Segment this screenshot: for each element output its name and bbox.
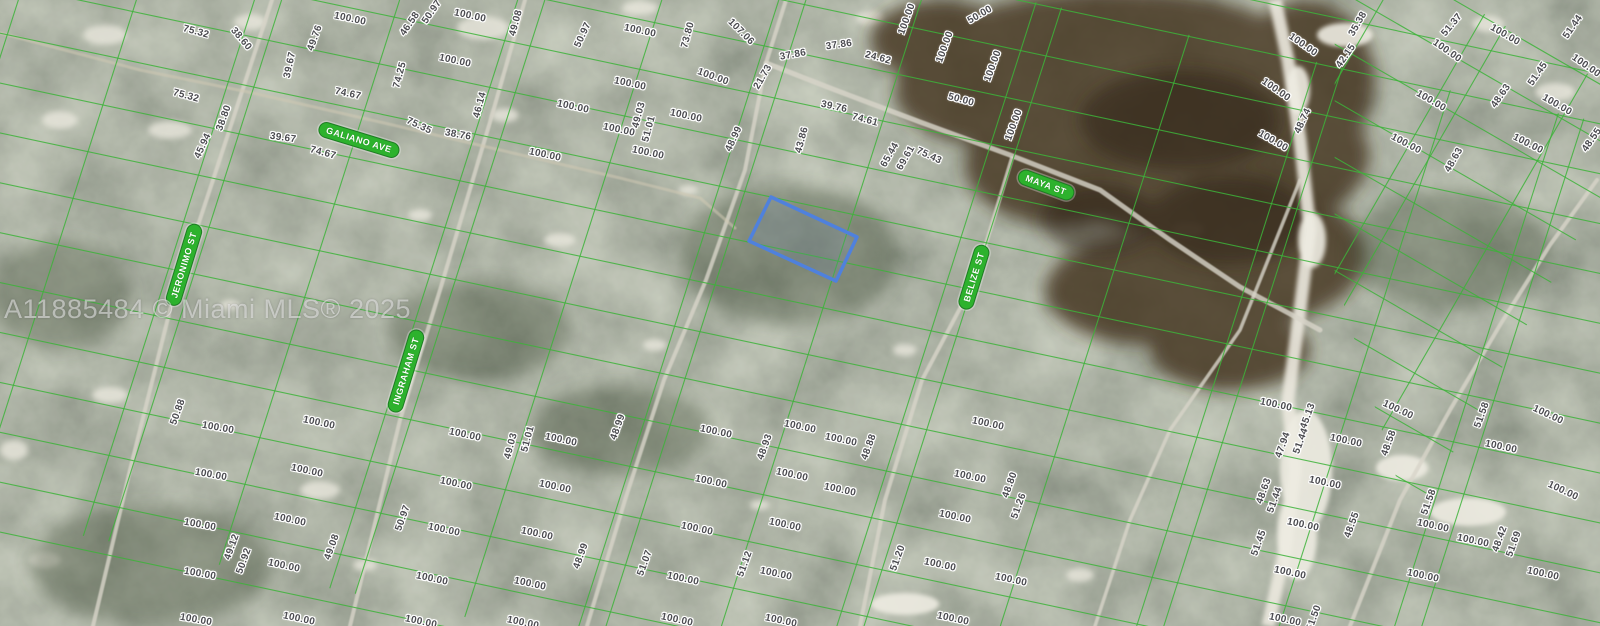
watermark: A11885484 © Miami MLS® 2025 — [4, 294, 411, 325]
satellite-parcel-map[interactable]: 75.3238.6039.6775.3238.8045.9439.67100.0… — [0, 0, 1600, 626]
